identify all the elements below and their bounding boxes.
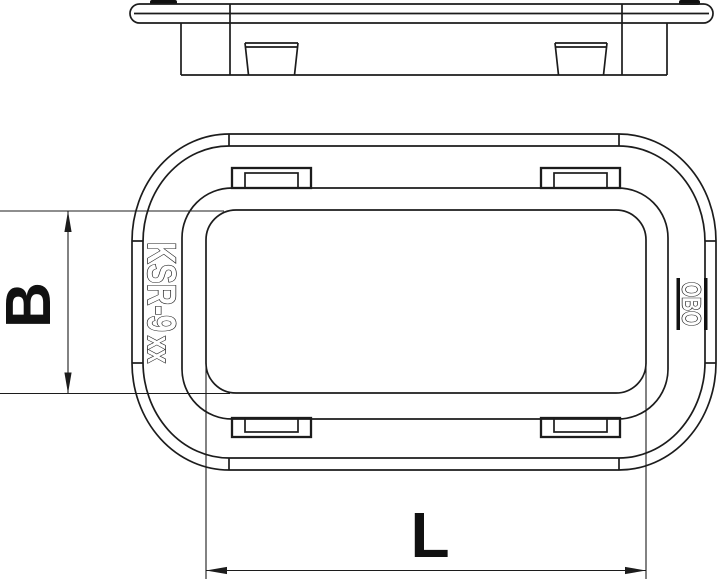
frame-ring xyxy=(182,188,668,419)
outer-contour-step xyxy=(143,146,705,458)
technical-drawing: KSR-9 xx OBO B L xyxy=(0,0,720,579)
front-view: KSR-9 xx OBO xyxy=(132,134,716,470)
cutout-opening xyxy=(206,210,646,393)
l-arrow-left xyxy=(206,567,227,574)
profile-clip-left xyxy=(245,43,298,75)
obo-logo-text: OBO xyxy=(677,282,707,326)
l-dimension-label: L xyxy=(410,499,449,571)
top-view xyxy=(130,0,713,75)
product-marking: KSR-9 xx xyxy=(139,242,183,363)
b-dimension-label: B xyxy=(0,282,64,328)
dimension-b: B xyxy=(0,211,230,394)
clip-top-left xyxy=(232,168,311,188)
l-arrow-right xyxy=(625,567,646,574)
profile-clip-right xyxy=(555,43,607,75)
clip-top-right xyxy=(541,168,620,188)
clip-bottom-right xyxy=(541,418,620,437)
product-code-suffix-text: xx xyxy=(141,336,177,363)
drawing-canvas: KSR-9 xx OBO B L xyxy=(0,0,720,579)
profile-body xyxy=(181,23,667,75)
b-arrow-down xyxy=(64,373,71,394)
obo-logo: OBO xyxy=(677,278,708,330)
clip-bottom-left xyxy=(232,418,311,437)
b-arrow-up xyxy=(64,211,71,232)
product-code-text: KSR-9 xyxy=(139,242,183,332)
dimension-l: L xyxy=(206,363,646,579)
